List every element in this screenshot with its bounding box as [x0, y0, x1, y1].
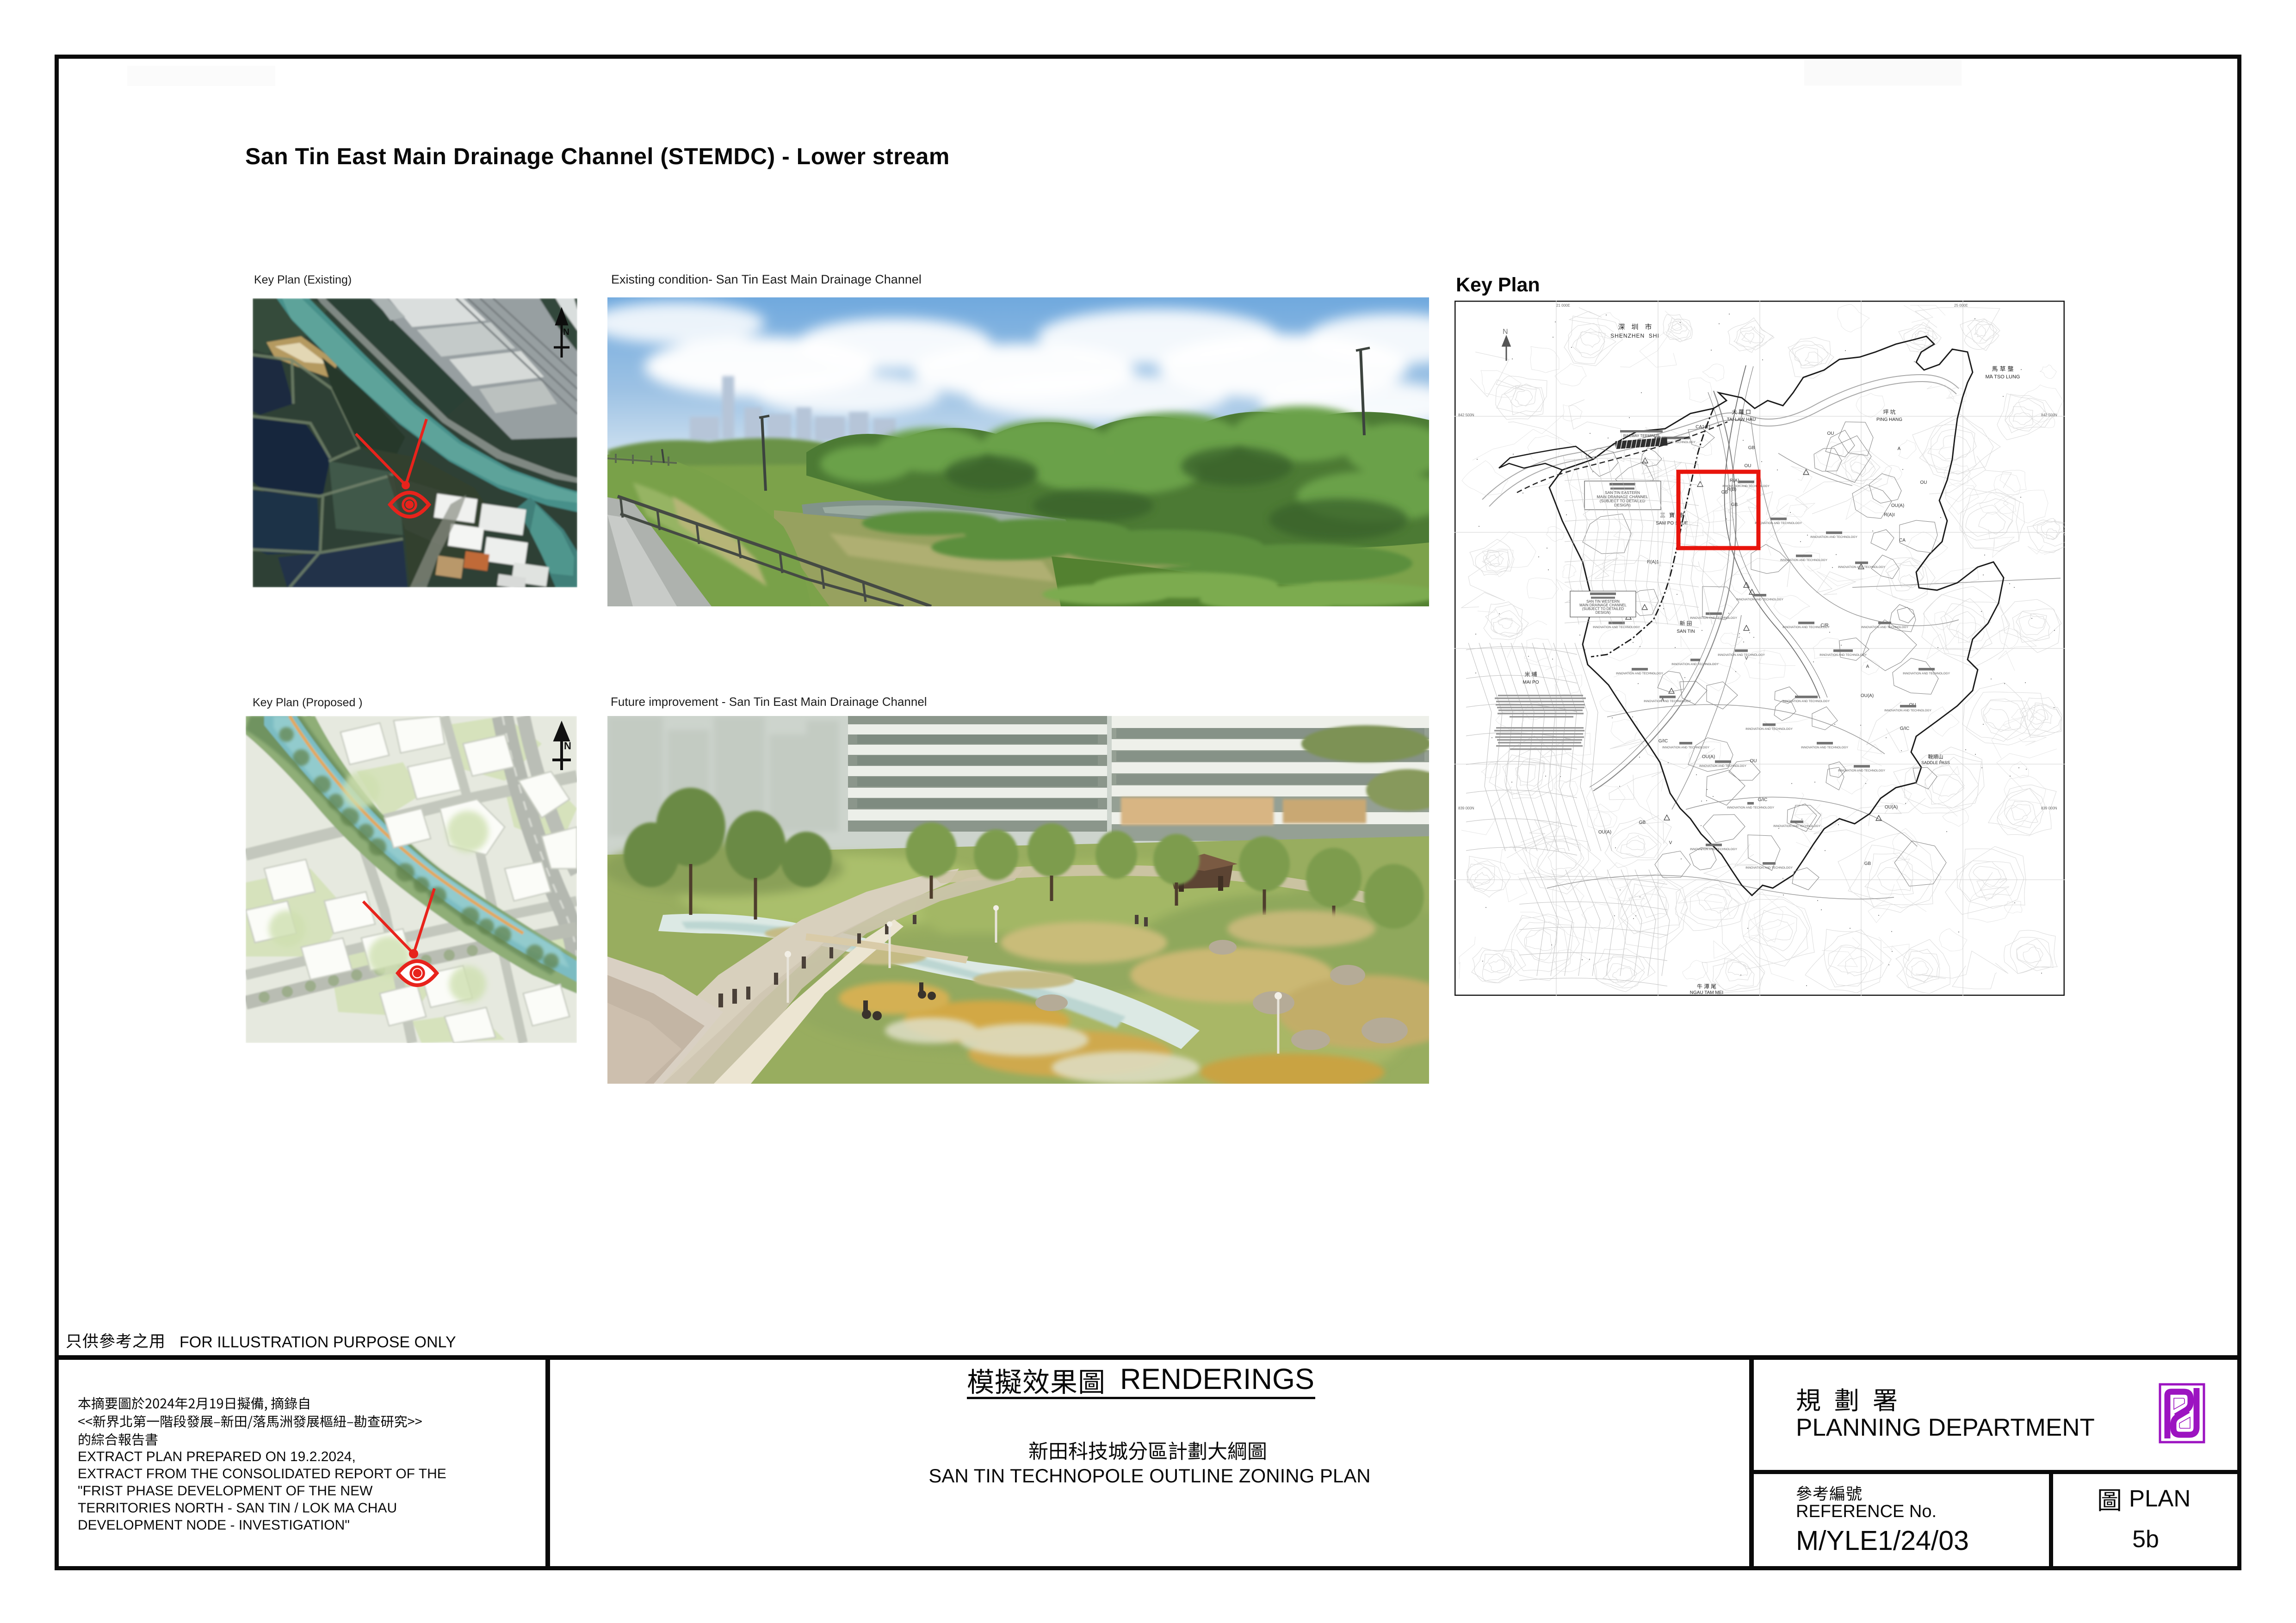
svg-text:INNOVATION AND TECHNOLOGY: INNOVATION AND TECHNOLOGY	[1810, 536, 1858, 539]
svg-text:GB: GB	[1721, 490, 1728, 495]
svg-text:INNOVATION AND TECHNOLOGY: INNOVATION AND TECHNOLOGY	[1838, 769, 1886, 772]
svg-text:INNOVATION AND TECHNOLOGY: INNOVATION AND TECHNOLOGY	[1861, 626, 1909, 629]
svg-text:GB: GB	[1748, 445, 1755, 450]
svg-text:OU(A): OU(A)	[1891, 503, 1904, 508]
svg-text:OU(A): OU(A)	[1702, 754, 1715, 759]
svg-text:OU(A): OU(A)	[1598, 830, 1611, 835]
svg-text:INNOVATION AND TECHNOLOGY: INNOVATION AND TECHNOLOGY	[1662, 746, 1710, 749]
svg-text:G/IC: G/IC	[1758, 797, 1768, 802]
svg-text:RAILWAY TERMINUS: RAILWAY TERMINUS	[1623, 434, 1659, 438]
svg-text:OU: OU	[1745, 463, 1751, 469]
svg-text:INNOVATION AND TECHNOLOGY: INNOVATION AND TECHNOLOGY	[1593, 626, 1640, 629]
svg-text:INNOVATION AND TECHNOLOGY: INNOVATION AND TECHNOLOGY	[1690, 848, 1738, 851]
svg-text:GB: GB	[1731, 502, 1738, 507]
svg-text:DESIGN): DESIGN)	[1596, 611, 1611, 615]
svg-text:839 000N: 839 000N	[1458, 806, 1474, 810]
svg-text:CA: CA	[1899, 538, 1906, 543]
svg-text:R(A)I: R(A)I	[1884, 512, 1894, 518]
svg-text:INNOVATION AND TECHNOLOGY: INNOVATION AND TECHNOLOGY	[1671, 663, 1719, 666]
svg-text:INNOVATION AND TECHNOLOGY: INNOVATION AND TECHNOLOGY	[1616, 672, 1664, 675]
svg-text:INNOVATION AND TECHNOLOGY: INNOVATION AND TECHNOLOGY	[1718, 654, 1765, 657]
svg-text:OU(A): OU(A)	[1885, 805, 1898, 810]
svg-text:839 000N: 839 000N	[2041, 806, 2057, 810]
svg-text:GB: GB	[1639, 820, 1646, 825]
svg-text:SAN TIN: SAN TIN	[1677, 629, 1695, 634]
svg-text:INNOVATION AND TECHNOLOGY: INNOVATION AND TECHNOLOGY	[1780, 559, 1828, 562]
svg-text:MAI PO: MAI PO	[1522, 680, 1539, 685]
svg-text:OU(A): OU(A)	[1861, 693, 1874, 698]
svg-text:TAI LAW HAU: TAI LAW HAU	[1727, 417, 1756, 422]
svg-text:INNOVATION AND TECHNOLOGY: INNOVATION AND TECHNOLOGY	[1727, 806, 1775, 809]
svg-text:INNOVATION AND TECHNOLOGY: INNOVATION AND TECHNOLOGY	[1722, 485, 1770, 488]
svg-text:INNOVATION AND TECHNOLOGY: INNOVATION AND TECHNOLOGY	[1745, 866, 1793, 870]
svg-text:SHENZHEN SHI: SHENZHEN SHI	[1610, 333, 1659, 339]
svg-text:G/IC: G/IC	[1659, 739, 1668, 744]
svg-text:N: N	[564, 740, 571, 752]
svg-text:A: A	[1866, 664, 1869, 669]
svg-text:INNOVATION AND TECHNOLOGY: INNOVATION AND TECHNOLOGY	[1903, 672, 1950, 675]
svg-text:OU: OU	[1827, 431, 1834, 436]
svg-text:OU: OU	[1920, 480, 1927, 485]
svg-text:INNOVATION AND TECHNOLOGY: INNOVATION AND TECHNOLOGY	[1745, 728, 1793, 731]
svg-text:INNOVATION AND TECHNOLOGY: INNOVATION AND TECHNOLOGY	[1884, 709, 1932, 712]
svg-text:N: N	[1503, 328, 1508, 336]
svg-text:INNOVATION AND TECHNOLOGY: INNOVATION AND TECHNOLOGY	[1782, 700, 1830, 703]
svg-text:INNOVATION AND TECHNOLOGY: INNOVATION AND TECHNOLOGY	[1644, 700, 1691, 703]
svg-text:NGAU TAM MEI: NGAU TAM MEI	[1690, 990, 1723, 995]
svg-text:N: N	[563, 327, 569, 337]
svg-text:PING HANG: PING HANG	[1876, 417, 1902, 422]
svg-text:842 500N: 842 500N	[2041, 413, 2057, 417]
svg-text:842 500N: 842 500N	[1458, 413, 1474, 417]
svg-text:INNOVATION AND TECHNOLOGY: INNOVATION AND TECHNOLOGY	[1838, 566, 1886, 569]
svg-text:A: A	[1898, 446, 1901, 451]
svg-text:INNOVATION AND TECHNOLOGY: INNOVATION AND TECHNOLOGY	[1801, 746, 1849, 749]
svg-text:21 000E: 21 000E	[1556, 303, 1570, 308]
svg-text:INNOVATION AND TECHNOLOGY: INNOVATION AND TECHNOLOGY	[1736, 598, 1784, 601]
svg-text:INNOVATION AND TECHNOLOGY: INNOVATION AND TECHNOLOGY	[1782, 626, 1830, 629]
svg-text:OU: OU	[1750, 759, 1757, 764]
svg-text:CA1(1): CA1(1)	[1696, 425, 1710, 430]
svg-text:G/IC: G/IC	[1900, 726, 1910, 731]
svg-text:INNOVATION AND TECHNOLOGY: INNOVATION AND TECHNOLOGY	[1699, 765, 1747, 768]
svg-text:GB: GB	[1864, 861, 1871, 866]
svg-text:R(A): R(A)	[1730, 478, 1739, 483]
svg-text:25 000E: 25 000E	[1954, 303, 1968, 308]
svg-text:INNOVATION AND TECHNOLOGY: INNOVATION AND TECHNOLOGY	[1773, 825, 1821, 828]
svg-text:SADDLE PASS: SADDLE PASS	[1921, 760, 1950, 765]
svg-text:V: V	[1669, 840, 1672, 845]
svg-text:INNOVATION AND TECHNOLOGY: INNOVATION AND TECHNOLOGY	[1819, 654, 1867, 657]
svg-text:MA TSO LUNG: MA TSO LUNG	[1986, 374, 2020, 380]
svg-text:INNOVATION AND TECHNOLOGY: INNOVATION AND TECHNOLOGY	[1755, 522, 1802, 525]
svg-text:INNOVATION AND TECHNOLOGY: INNOVATION AND TECHNOLOGY	[1690, 617, 1738, 620]
